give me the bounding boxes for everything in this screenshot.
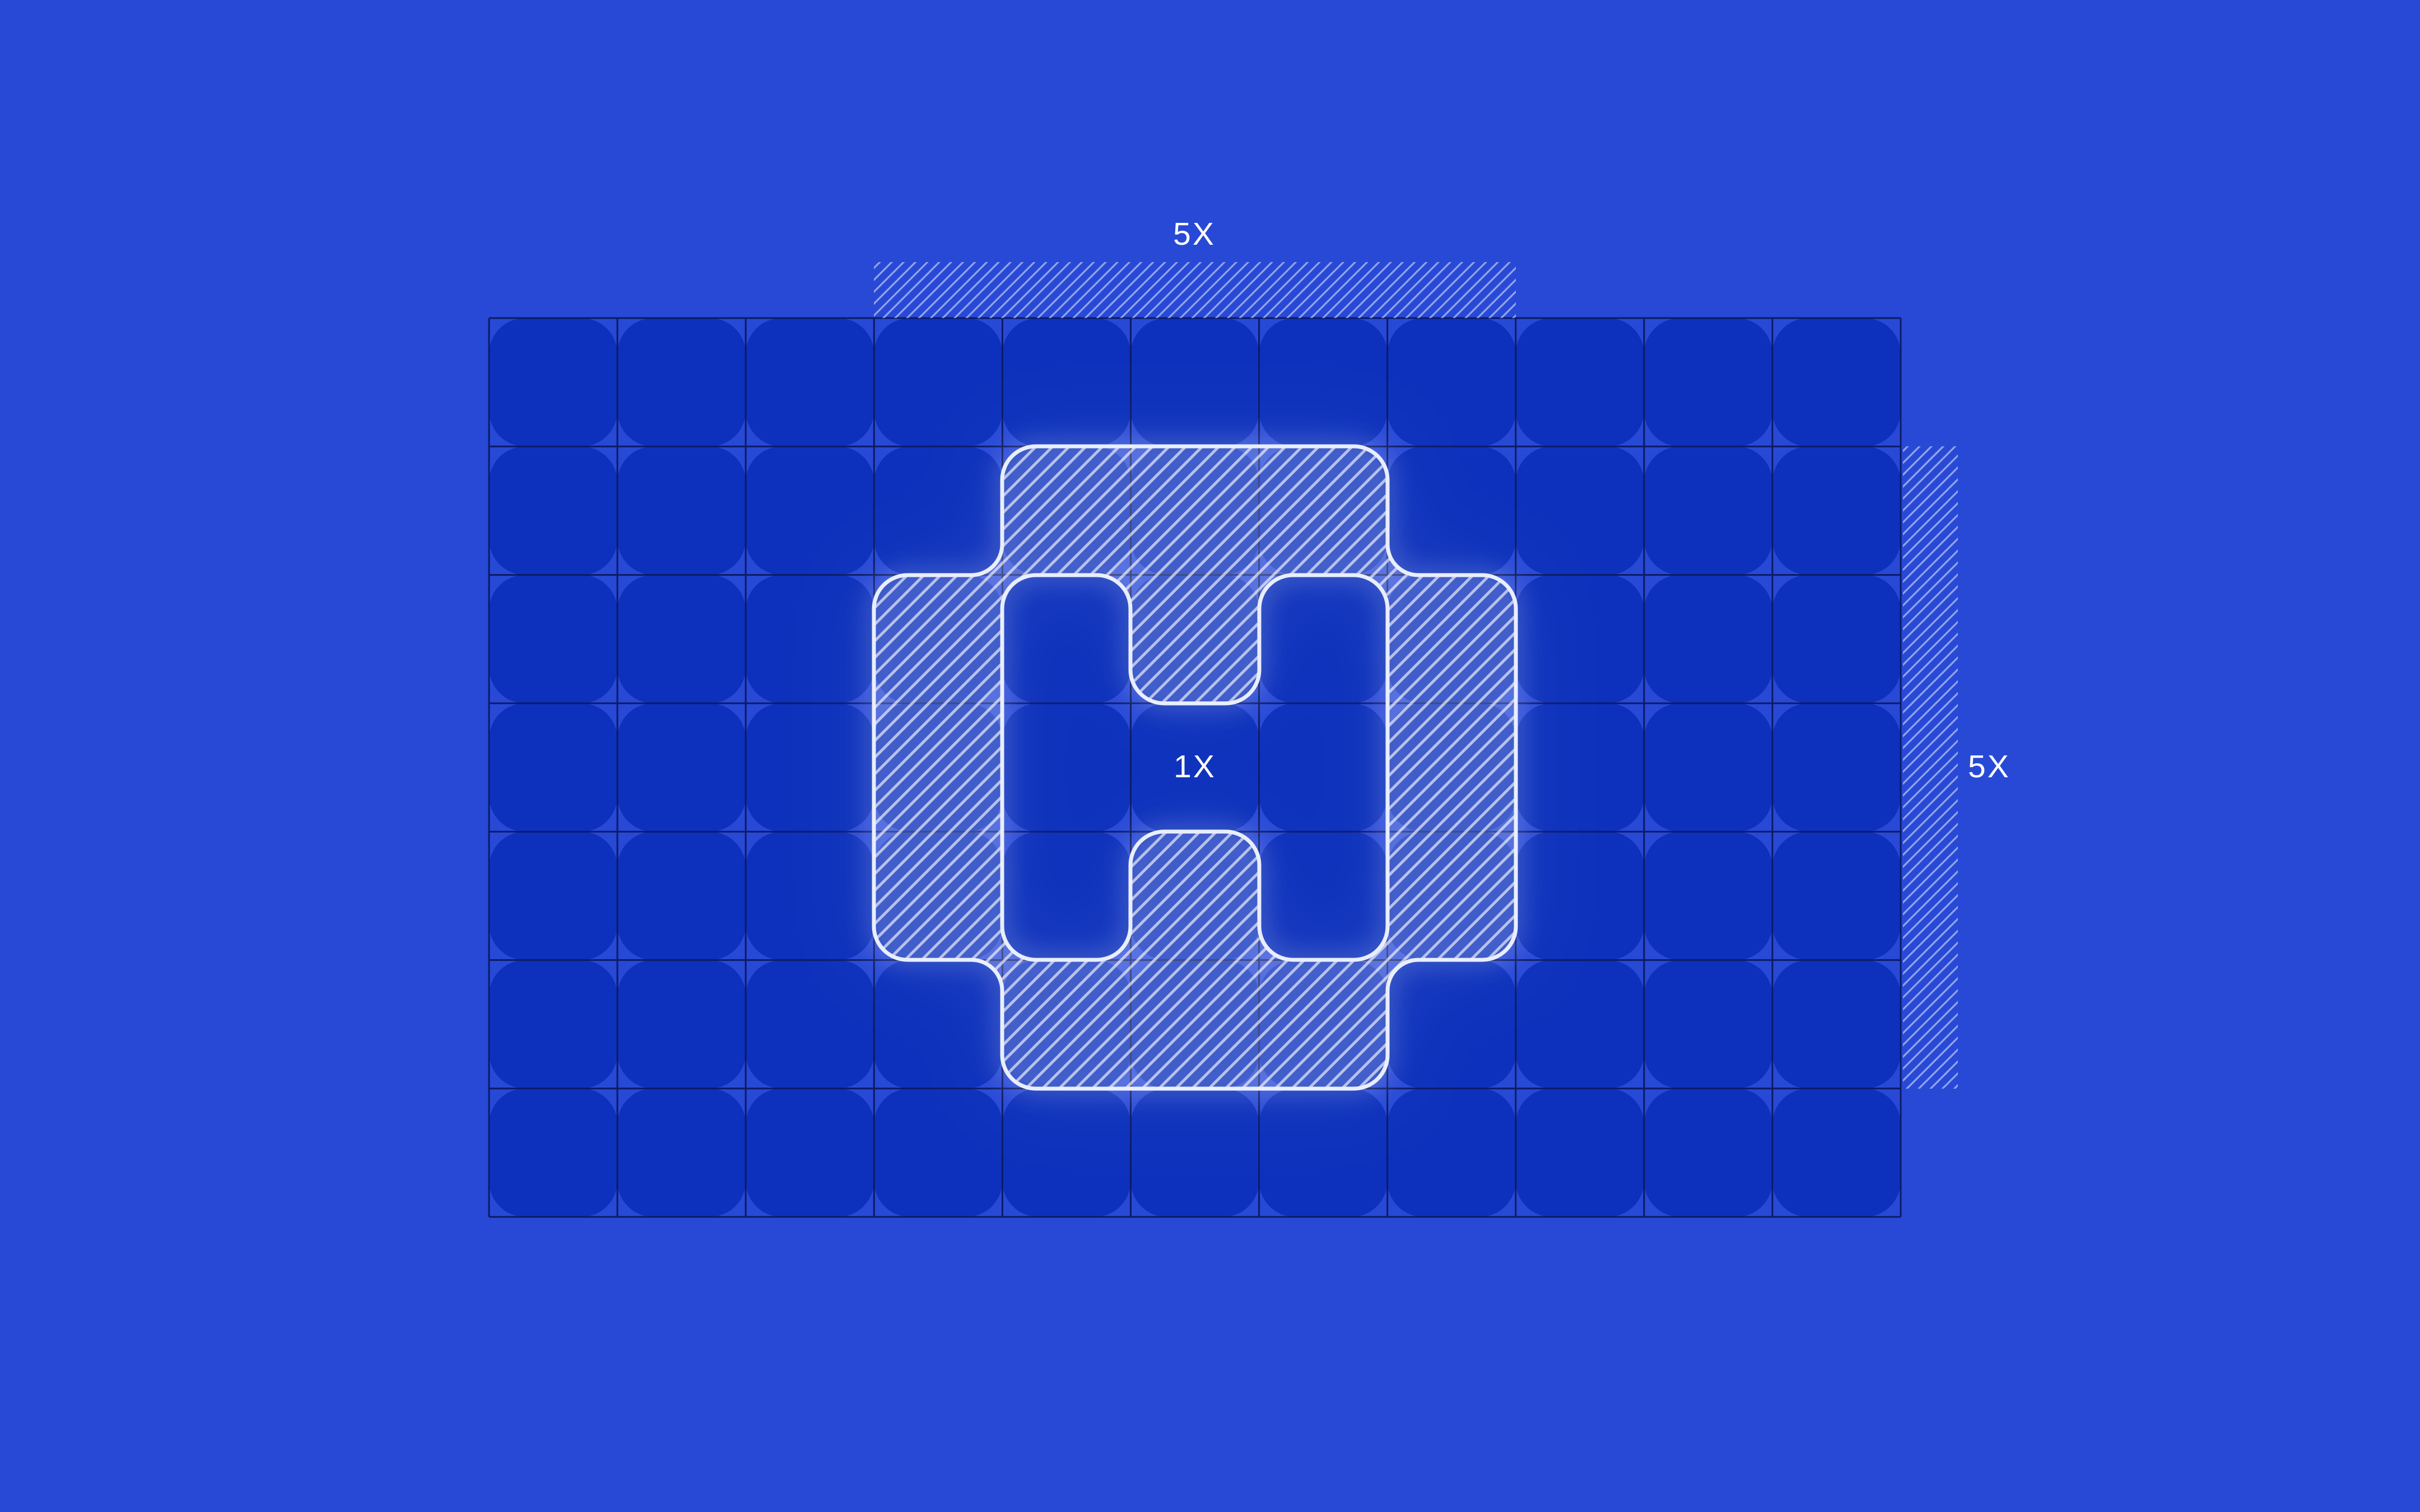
grid-cell: [746, 318, 874, 446]
grid-cell: [1130, 1089, 1259, 1217]
grid-cell: [1516, 318, 1644, 446]
brand-guideline-canvas: 5X 1X 5X: [0, 0, 2420, 1512]
grid-cell: [1772, 1089, 1901, 1217]
grid-cell: [1002, 575, 1130, 703]
grid-cell: [1644, 446, 1772, 575]
grid-cell: [489, 575, 617, 703]
top-dimension-bar: [874, 262, 1516, 318]
right-dimension-bar: [1903, 446, 1958, 1089]
grid-cell: [1002, 318, 1130, 446]
grid-cell: [1259, 318, 1388, 446]
grid-cell: [617, 575, 746, 703]
grid-cell: [489, 1089, 617, 1217]
grid-cell: [1259, 703, 1388, 832]
grid-cell: [874, 318, 1002, 446]
grid-cell: [1259, 1089, 1388, 1217]
grid-cell: [1772, 318, 1901, 446]
grid-cell: [1259, 832, 1388, 960]
grid-cell: [1516, 575, 1644, 703]
grid-cell: [1388, 318, 1516, 446]
grid-cell: [489, 446, 617, 575]
grid-cell: [489, 318, 617, 446]
grid-cell: [617, 446, 746, 575]
logo-grid-figure: 5X 1X 5X: [0, 0, 2420, 1512]
grid-cell: [489, 703, 617, 832]
grid-cell: [1772, 703, 1901, 832]
grid-cell: [1772, 575, 1901, 703]
grid-cell: [746, 1089, 874, 1217]
top-dimension-label: 5X: [1173, 216, 1216, 252]
grid-cell: [1644, 960, 1772, 1088]
grid-cell: [1772, 446, 1901, 575]
grid-cell: [1772, 832, 1901, 960]
grid-cell: [874, 960, 1002, 1088]
grid-cell: [1388, 1089, 1516, 1217]
grid-cell: [746, 960, 874, 1088]
grid-cell: [746, 575, 874, 703]
grid-cell: [489, 960, 617, 1088]
grid-cell: [1644, 832, 1772, 960]
grid-cell: [874, 446, 1002, 575]
grid-cell: [1516, 1089, 1644, 1217]
grid-cell: [746, 703, 874, 832]
grid-cell: [1644, 575, 1772, 703]
grid-cell: [874, 1089, 1002, 1217]
right-dimension-label: 5X: [1968, 749, 2011, 785]
grid-cell: [617, 960, 746, 1088]
grid-cell: [746, 446, 874, 575]
grid-cell: [1644, 703, 1772, 832]
grid-cell: [1002, 703, 1130, 832]
grid-cell: [1516, 446, 1644, 575]
grid-cell: [1388, 960, 1516, 1088]
grid-cell: [1644, 1089, 1772, 1217]
center-dimension-label: 1X: [1174, 749, 1216, 785]
grid-cell: [746, 832, 874, 960]
grid-cell: [617, 832, 746, 960]
grid-cell: [617, 703, 746, 832]
grid-cell: [617, 318, 746, 446]
grid-cell: [1002, 832, 1130, 960]
grid-cell: [1130, 318, 1259, 446]
grid-cell: [489, 832, 617, 960]
grid-cell: [1516, 832, 1644, 960]
grid-cell: [1644, 318, 1772, 446]
grid-cell: [617, 1089, 746, 1217]
grid-cell: [1516, 703, 1644, 832]
grid-cell: [1516, 960, 1644, 1088]
grid-cell: [1772, 960, 1901, 1088]
grid-cell: [1002, 1089, 1130, 1217]
grid-cell: [1259, 575, 1388, 703]
grid-cell: [1388, 446, 1516, 575]
